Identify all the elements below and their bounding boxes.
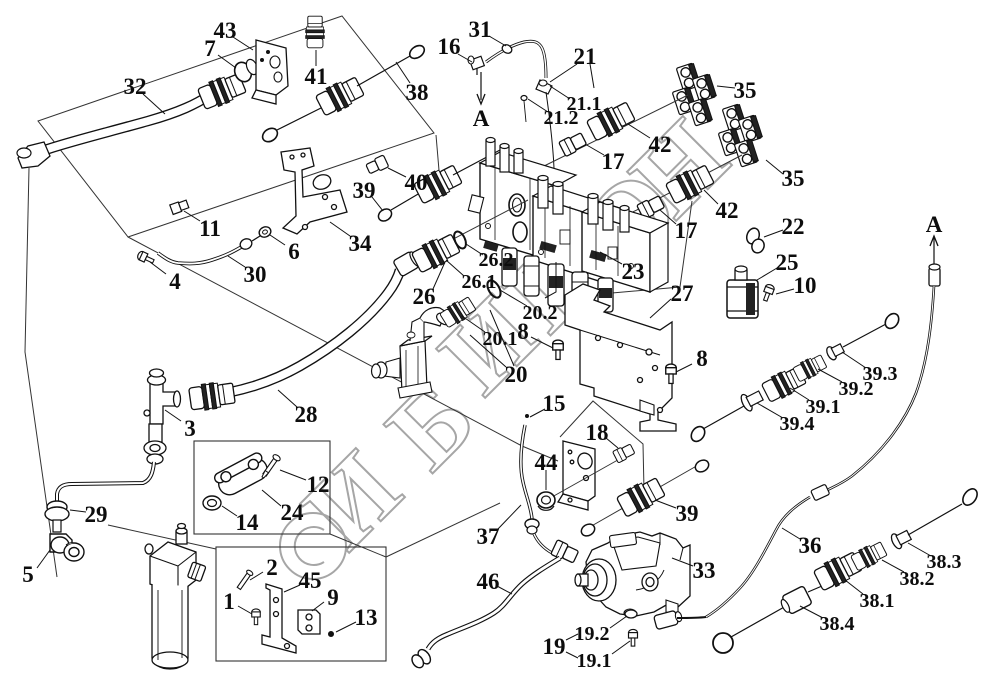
svg-text:15: 15: [543, 391, 566, 416]
svg-text:11: 11: [199, 216, 221, 241]
svg-text:21.2: 21.2: [544, 107, 579, 129]
svg-text:17: 17: [675, 218, 698, 243]
svg-text:24: 24: [281, 500, 305, 525]
svg-text:39.4: 39.4: [780, 413, 815, 435]
svg-text:26: 26: [413, 284, 436, 309]
svg-text:9: 9: [327, 585, 339, 610]
svg-text:35: 35: [734, 78, 757, 103]
svg-text:38.4: 38.4: [820, 613, 855, 635]
svg-text:13: 13: [355, 605, 378, 630]
svg-text:23: 23: [622, 259, 645, 284]
svg-text:A: A: [926, 212, 943, 237]
svg-text:19: 19: [543, 634, 566, 659]
svg-text:3: 3: [184, 416, 196, 441]
svg-text:A: A: [473, 106, 490, 131]
svg-text:40: 40: [405, 170, 428, 195]
svg-text:46: 46: [477, 569, 500, 594]
svg-text:1: 1: [223, 589, 235, 614]
svg-text:26.1: 26.1: [462, 271, 497, 293]
svg-text:14: 14: [236, 510, 260, 535]
svg-text:41: 41: [305, 64, 328, 89]
svg-text:12: 12: [307, 472, 330, 497]
svg-text:28: 28: [295, 402, 318, 427]
svg-text:39: 39: [676, 501, 699, 526]
svg-text:43: 43: [214, 18, 237, 43]
svg-text:20: 20: [505, 362, 528, 387]
svg-text:6: 6: [288, 239, 300, 264]
svg-text:39: 39: [353, 178, 376, 203]
svg-text:34: 34: [349, 231, 373, 256]
svg-text:27: 27: [671, 281, 694, 306]
svg-text:39.2: 39.2: [839, 378, 874, 400]
svg-text:42: 42: [649, 132, 672, 157]
svg-text:2: 2: [266, 555, 278, 580]
svg-text:5: 5: [22, 562, 34, 587]
svg-text:29: 29: [85, 502, 108, 527]
svg-text:21: 21: [574, 44, 597, 69]
svg-text:25: 25: [776, 250, 799, 275]
svg-text:8: 8: [696, 346, 708, 371]
svg-text:19.2: 19.2: [575, 623, 610, 645]
svg-text:42: 42: [716, 198, 739, 223]
svg-text:32: 32: [124, 74, 147, 99]
svg-text:18: 18: [586, 420, 609, 445]
svg-text:10: 10: [794, 273, 817, 298]
svg-text:17: 17: [602, 149, 625, 174]
svg-text:38.1: 38.1: [860, 590, 895, 612]
svg-text:33: 33: [693, 558, 716, 583]
svg-text:19.1: 19.1: [577, 650, 612, 672]
svg-text:45: 45: [299, 568, 322, 593]
svg-text:38: 38: [406, 80, 429, 105]
svg-text:31: 31: [469, 17, 492, 42]
svg-text:36: 36: [799, 533, 822, 558]
svg-text:30: 30: [244, 262, 267, 287]
svg-text:35: 35: [782, 166, 805, 191]
svg-text:8: 8: [517, 319, 529, 344]
svg-text:20.1: 20.1: [483, 328, 518, 350]
svg-text:26.2: 26.2: [479, 249, 514, 271]
svg-text:16: 16: [438, 34, 461, 59]
svg-text:22: 22: [782, 214, 805, 239]
svg-text:44: 44: [535, 450, 559, 475]
svg-text:7: 7: [204, 36, 216, 61]
svg-text:37: 37: [477, 524, 500, 549]
svg-text:38.2: 38.2: [900, 568, 935, 590]
svg-text:4: 4: [169, 269, 181, 294]
